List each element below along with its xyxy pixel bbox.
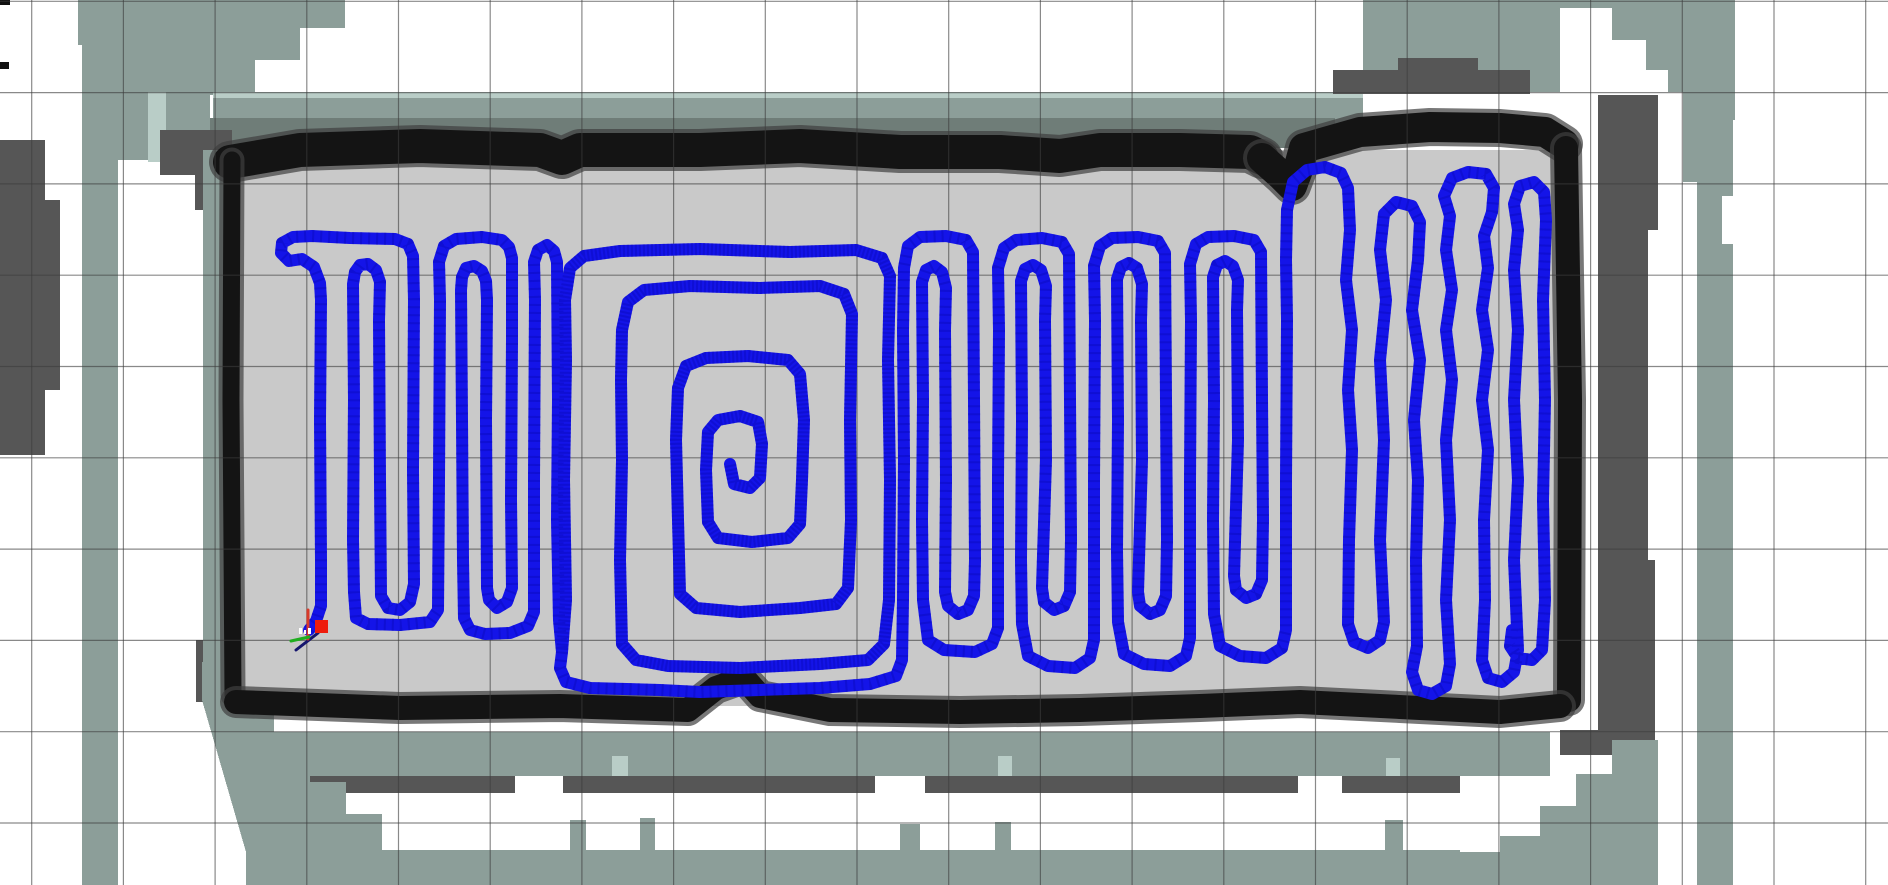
tf-frame-label-glyph: [304, 630, 306, 634]
unknown-left-band: [82, 0, 118, 885]
unknown-below-room-tint-1: [612, 756, 628, 776]
free-bottom-strip-gap-1: [515, 776, 563, 793]
unexplored-bottom-strip: [250, 776, 1460, 793]
map-canvas[interactable]: [0, 0, 1888, 885]
unknown-bottom-band: [248, 850, 1460, 885]
free-bottom-strip-gap-3: [1298, 776, 1342, 793]
wall-right: [1566, 148, 1570, 700]
wall-top: [230, 146, 1262, 162]
unknown-bottom-bump-5: [1385, 820, 1403, 852]
unknown-right-band-step: [1683, 92, 1699, 182]
occupied-edge-bar-mid: [0, 62, 9, 69]
unexplored-top-bump-step: [1398, 58, 1478, 72]
tf-frame-label-glyph: [308, 628, 311, 634]
unknown-below-room-tint-3: [1386, 758, 1400, 776]
unknown-bottom-bump-3: [900, 824, 920, 852]
unexplored-top-bump: [1333, 70, 1530, 94]
free-right-band-notch: [1722, 196, 1733, 244]
rviz-3d-viewport[interactable]: [0, 0, 1888, 885]
free-bottom-strip-gap-2: [875, 776, 925, 793]
unknown-below-room-tint-2: [998, 756, 1012, 776]
waypoint-cube-marker: [315, 620, 328, 633]
tf-frame-label-glyph: [299, 628, 302, 634]
unknown-bottom-bump-1: [570, 820, 586, 852]
wall-left: [231, 160, 233, 695]
unknown-bottom-bump-4: [995, 822, 1011, 852]
unknown-below-room-band: [250, 732, 1550, 776]
